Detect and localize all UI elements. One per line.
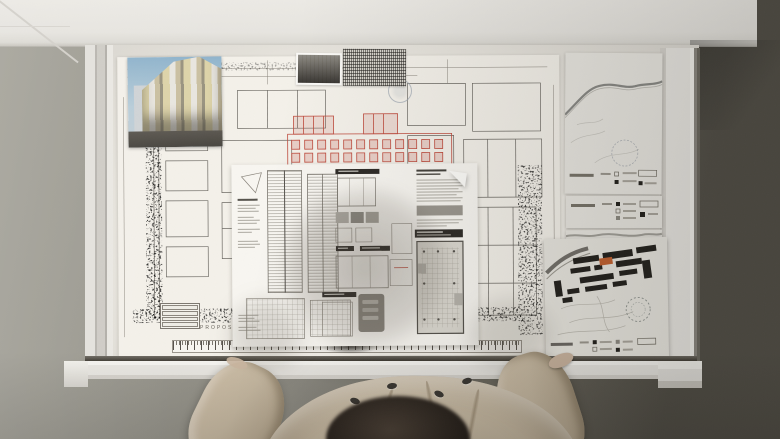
scene-drawer-photo: PROPOSED <box>0 0 780 439</box>
block-map-sheet <box>544 237 669 363</box>
legend-2-drawing <box>566 196 662 228</box>
blueprint-title-block <box>160 303 200 329</box>
towers-color-photo <box>127 56 222 147</box>
highrise-towers <box>141 56 222 135</box>
bw-building-photo <box>296 53 342 85</box>
street-level <box>128 130 222 147</box>
bw-building-image <box>298 55 340 83</box>
cabinet-panel-seam <box>0 26 70 27</box>
cabinet-corner-seam <box>0 0 79 63</box>
block-map-drawing <box>544 237 669 363</box>
cabinet-top-panel <box>0 0 757 47</box>
map-legend-sheet-2 <box>566 196 662 228</box>
aerial-photo <box>343 49 406 86</box>
head-cast-shadow <box>280 185 450 350</box>
folded-corner <box>447 171 467 187</box>
drawer-front-edge <box>64 361 700 379</box>
building-blocks <box>551 245 662 304</box>
highlighted-block <box>599 257 613 266</box>
cabinet-floor-shadow <box>690 40 780 130</box>
drawer-front-right-corner <box>658 361 702 388</box>
red-highlight-plan <box>288 113 452 166</box>
coastline-map-sheet-1 <box>565 53 663 195</box>
drawer-front-left-corner <box>64 361 88 387</box>
block-map-legend <box>551 338 656 353</box>
coastline-map-1-drawing <box>565 53 663 195</box>
